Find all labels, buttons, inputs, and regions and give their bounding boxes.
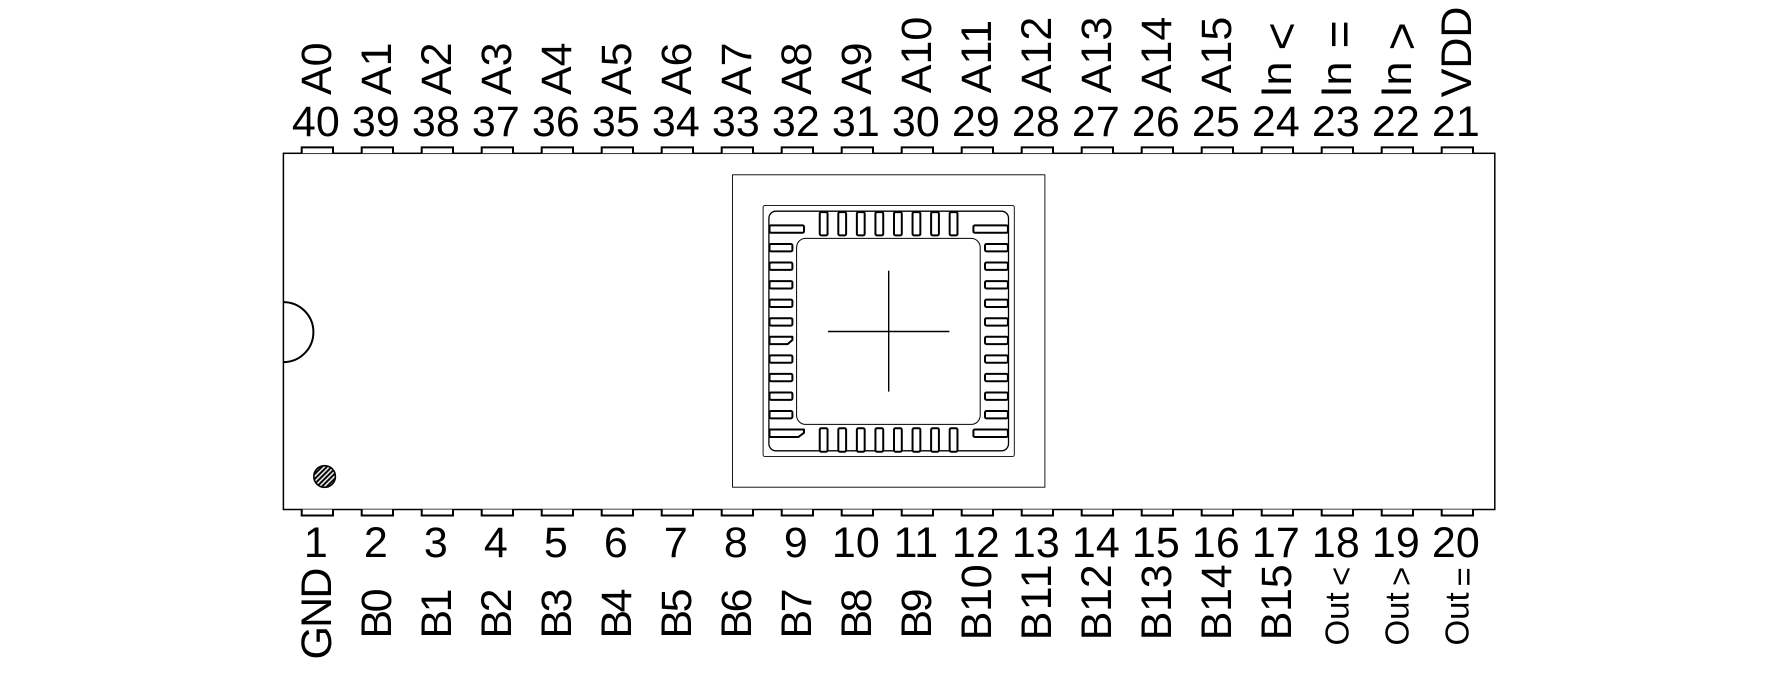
svg-text:6: 6 bbox=[604, 519, 628, 567]
svg-text:14: 14 bbox=[1072, 519, 1120, 567]
svg-text:Out: Out bbox=[1438, 592, 1475, 645]
svg-text:In: In bbox=[1253, 62, 1301, 98]
svg-text:30: 30 bbox=[892, 98, 940, 146]
svg-text:B1: B1 bbox=[413, 589, 461, 639]
svg-text:B12: B12 bbox=[1073, 564, 1121, 640]
svg-text:>: > bbox=[1382, 567, 1419, 586]
svg-text:16: 16 bbox=[1192, 519, 1240, 567]
svg-text:28: 28 bbox=[1012, 98, 1060, 146]
svg-text:1: 1 bbox=[304, 519, 328, 567]
svg-text:In: In bbox=[1313, 62, 1361, 98]
svg-text:22: 22 bbox=[1372, 98, 1420, 146]
svg-text:29: 29 bbox=[952, 98, 1000, 146]
svg-text:18: 18 bbox=[1312, 519, 1360, 567]
svg-text:11: 11 bbox=[894, 519, 939, 567]
svg-text:A4: A4 bbox=[533, 42, 581, 95]
svg-text:B9: B9 bbox=[893, 589, 941, 639]
svg-text:=: = bbox=[1313, 20, 1367, 48]
svg-text:36: 36 bbox=[532, 98, 580, 146]
svg-text:24: 24 bbox=[1252, 98, 1300, 146]
svg-text:5: 5 bbox=[544, 519, 568, 567]
svg-text:4: 4 bbox=[484, 519, 508, 567]
svg-text:B3: B3 bbox=[533, 589, 581, 639]
svg-text:20: 20 bbox=[1432, 519, 1480, 567]
svg-text:23: 23 bbox=[1312, 98, 1360, 146]
svg-text:A6: A6 bbox=[653, 42, 701, 95]
svg-text:9: 9 bbox=[784, 519, 808, 567]
svg-text:In: In bbox=[1373, 62, 1421, 98]
svg-text:32: 32 bbox=[772, 98, 820, 146]
svg-text:40: 40 bbox=[292, 98, 340, 146]
svg-text:B6: B6 bbox=[713, 589, 761, 639]
svg-text:34: 34 bbox=[652, 98, 700, 146]
svg-text:A5: A5 bbox=[593, 42, 641, 95]
svg-text:B0: B0 bbox=[353, 589, 401, 639]
svg-text:B2: B2 bbox=[473, 589, 521, 639]
svg-text:31: 31 bbox=[832, 98, 880, 146]
svg-text:15: 15 bbox=[1132, 519, 1180, 567]
svg-text:A2: A2 bbox=[413, 42, 461, 95]
svg-text:Out: Out bbox=[1378, 592, 1415, 645]
svg-text:35: 35 bbox=[592, 98, 640, 146]
svg-text:A11: A11 bbox=[953, 20, 1001, 93]
svg-text:B4: B4 bbox=[593, 589, 641, 639]
svg-text:33: 33 bbox=[712, 98, 760, 146]
svg-text:B11: B11 bbox=[1013, 564, 1061, 640]
svg-text:Out: Out bbox=[1318, 592, 1355, 645]
svg-text:26: 26 bbox=[1132, 98, 1180, 146]
svg-text:17: 17 bbox=[1252, 519, 1300, 567]
svg-text:27: 27 bbox=[1072, 98, 1120, 146]
svg-text:A14: A14 bbox=[1133, 17, 1181, 94]
svg-text:38: 38 bbox=[412, 98, 460, 146]
svg-text:<: < bbox=[1255, 22, 1309, 50]
svg-text:A8: A8 bbox=[773, 42, 821, 95]
svg-text:12: 12 bbox=[952, 519, 1000, 567]
svg-text:>: > bbox=[1375, 22, 1429, 50]
svg-text:39: 39 bbox=[352, 98, 400, 146]
svg-text:21: 21 bbox=[1432, 98, 1480, 146]
svg-text:<: < bbox=[1322, 567, 1359, 586]
svg-text:B5: B5 bbox=[653, 589, 701, 639]
svg-text:A13: A13 bbox=[1073, 17, 1121, 94]
svg-text:A12: A12 bbox=[1013, 17, 1061, 94]
svg-text:B10: B10 bbox=[953, 564, 1001, 640]
svg-text:A7: A7 bbox=[713, 42, 761, 95]
svg-text:37: 37 bbox=[472, 98, 520, 146]
svg-text:GND: GND bbox=[293, 568, 341, 660]
svg-text:VDD: VDD bbox=[1433, 7, 1481, 98]
svg-text:3: 3 bbox=[424, 519, 448, 567]
svg-text:7: 7 bbox=[664, 519, 688, 567]
svg-text:B8: B8 bbox=[833, 589, 881, 639]
svg-text:B13: B13 bbox=[1133, 564, 1181, 640]
svg-text:B7: B7 bbox=[773, 589, 821, 639]
svg-text:A9: A9 bbox=[833, 42, 881, 95]
svg-text:=: = bbox=[1445, 567, 1482, 586]
svg-text:A0: A0 bbox=[293, 42, 341, 95]
svg-text:10: 10 bbox=[832, 519, 880, 567]
svg-text:19: 19 bbox=[1372, 519, 1420, 567]
svg-text:A15: A15 bbox=[1193, 17, 1241, 94]
svg-text:B15: B15 bbox=[1253, 564, 1301, 640]
svg-text:2: 2 bbox=[364, 519, 388, 567]
svg-text:B14: B14 bbox=[1193, 564, 1241, 640]
svg-text:A3: A3 bbox=[473, 42, 521, 95]
svg-text:A1: A1 bbox=[353, 42, 401, 95]
svg-text:25: 25 bbox=[1192, 98, 1240, 146]
svg-text:8: 8 bbox=[724, 519, 748, 567]
svg-text:A10: A10 bbox=[893, 17, 941, 94]
svg-text:13: 13 bbox=[1012, 519, 1060, 567]
